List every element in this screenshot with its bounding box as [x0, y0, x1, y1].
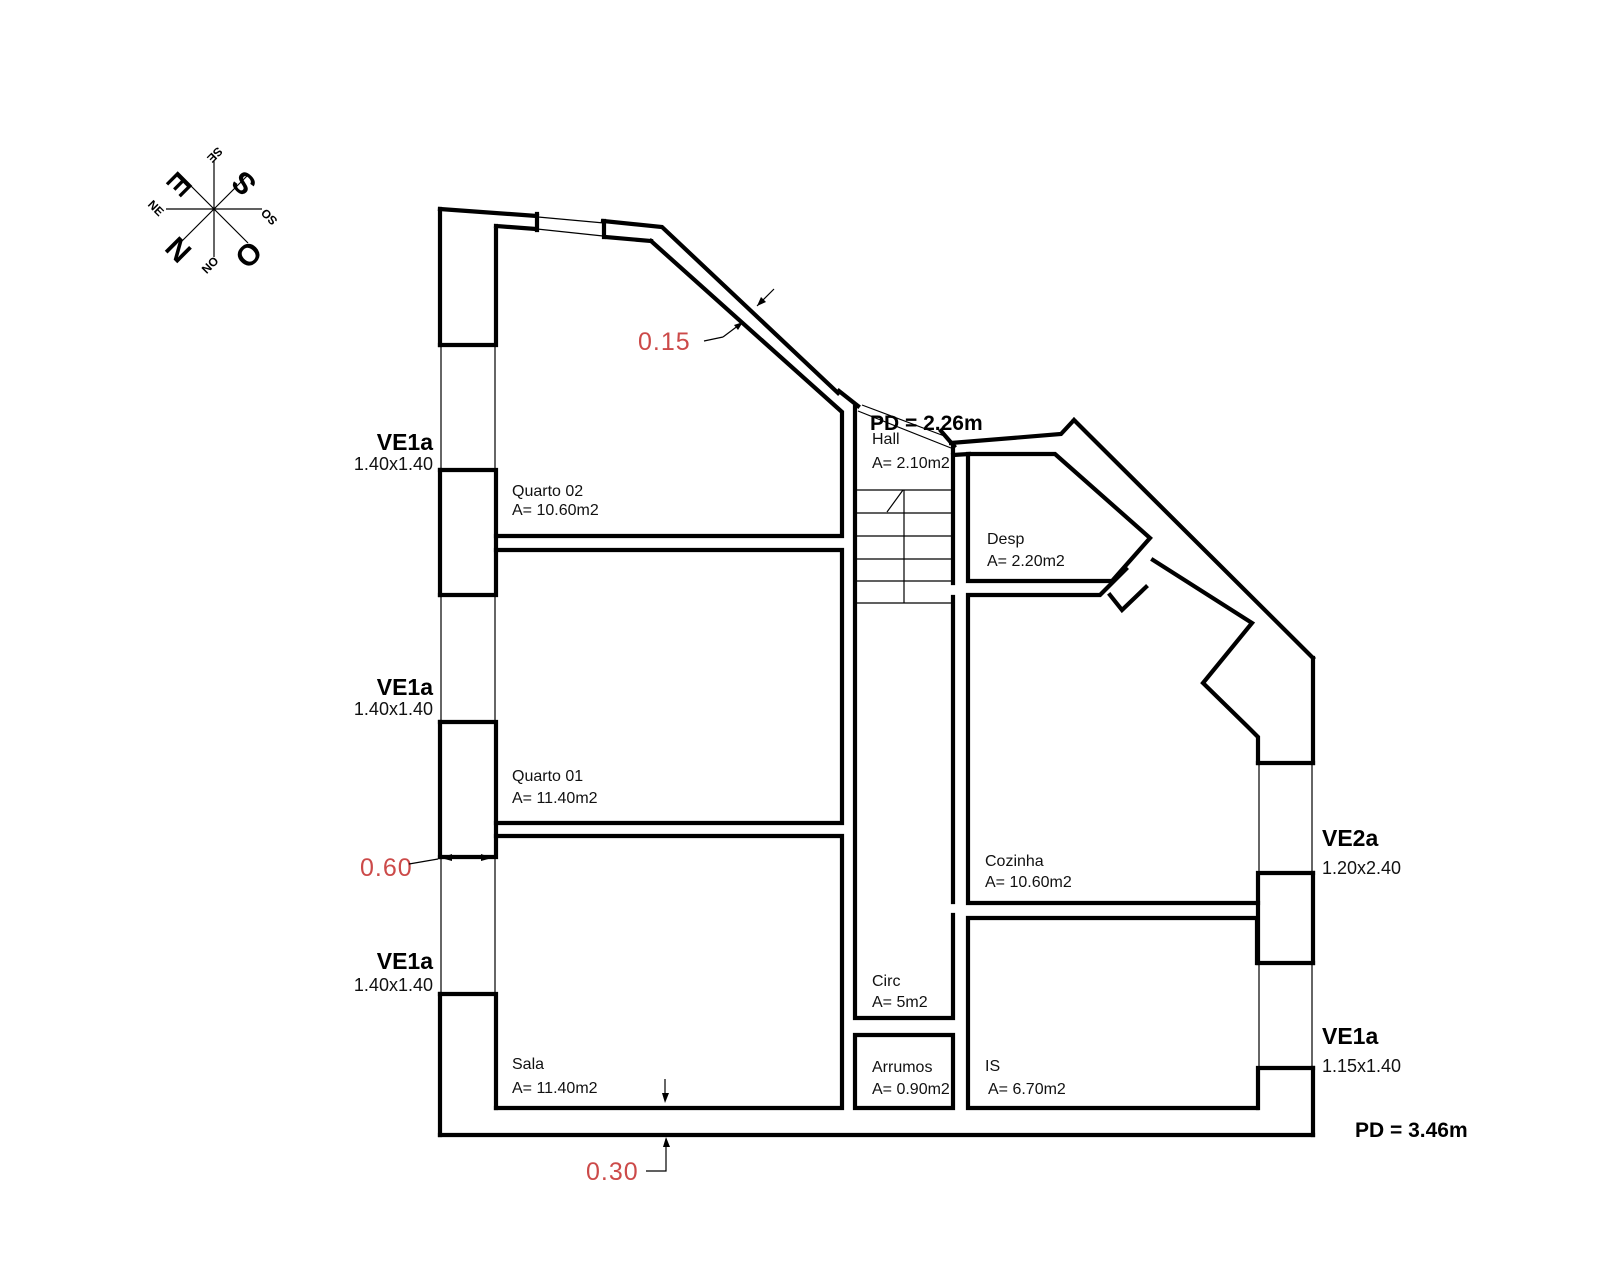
- window-size-ve1a-3: 1.40x1.40: [354, 975, 433, 995]
- window-tag-ve2a: VE2a: [1322, 825, 1378, 851]
- window-size-ve1a-2: 1.40x1.40: [354, 699, 433, 719]
- window-left-3: [441, 857, 495, 994]
- staircase: [856, 490, 952, 603]
- room-area-sala: A= 11.40m2: [512, 1080, 598, 1097]
- wall-top: [440, 209, 604, 237]
- compass-rose: SE S SO O NO N NE E: [145, 144, 280, 276]
- dimension-0-15-text: 0.15: [638, 328, 691, 356]
- wall-left-inner: [440, 226, 651, 1108]
- window-glazing-lines: [441, 217, 1312, 1068]
- room-area-quarto02: A= 10.60m2: [512, 502, 599, 519]
- window-tag-ve1a-3: VE1a: [377, 948, 433, 974]
- compass-label-s: S: [226, 164, 263, 201]
- compass-label-o: O: [229, 235, 269, 275]
- room-area-is: A= 6.70m2: [988, 1081, 1066, 1098]
- room-sala-outline: [496, 836, 842, 1108]
- room-area-desp: A= 2.20m2: [987, 553, 1065, 570]
- window-tag-ve1a-2: VE1a: [377, 674, 433, 700]
- window-tag-ve1a-4: VE1a: [1322, 1023, 1378, 1049]
- room-label-circ: Circ: [872, 973, 900, 990]
- room-is-outline: [968, 918, 1257, 1108]
- room-labels: Quarto 02 A= 10.60m2 Quarto 01 A= 11.40m…: [512, 431, 1072, 1098]
- dimension-0-30-arrowheads: [662, 1093, 670, 1147]
- room-label-desp: Desp: [987, 531, 1024, 548]
- room-label-quarto01: Quarto 01: [512, 768, 583, 785]
- compass-label-ne: NE: [145, 197, 167, 219]
- dimension-0-30: 0.30: [586, 1079, 670, 1186]
- pd-label-main: PD = 3.46m: [1355, 1119, 1468, 1142]
- corridor-outline: [855, 407, 969, 1018]
- room-area-arrumos: A= 0.90m2: [872, 1081, 950, 1098]
- room-label-cozinha: Cozinha: [985, 853, 1044, 870]
- dimension-0-60-leader: [409, 859, 438, 864]
- room-label-sala: Sala: [512, 1056, 544, 1073]
- room-label-is: IS: [985, 1058, 1000, 1075]
- window-size-ve1a-1: 1.40x1.40: [354, 454, 433, 474]
- window-right-ve2a: [1259, 763, 1312, 873]
- dimension-0-60-text: 0.60: [360, 854, 413, 882]
- stair-break-line: [887, 490, 903, 512]
- floor-plan-drawing: SE S SO O NO N NE E: [0, 0, 1600, 1280]
- window-size-ve1a-4: 1.15x1.40: [1322, 1056, 1401, 1076]
- window-left-2: [441, 595, 495, 722]
- compass-label-e: E: [160, 165, 197, 202]
- wall-right-inner: [1258, 763, 1313, 1108]
- room-label-arrumos: Arrumos: [872, 1059, 932, 1076]
- dimension-0-30-leader: [646, 1079, 666, 1171]
- pd-label-hall: PD = 2.26m: [870, 412, 983, 435]
- room-label-quarto02: Quarto 02: [512, 483, 583, 500]
- compass-label-no: NO: [199, 254, 222, 277]
- room-area-cozinha: A= 10.60m2: [985, 874, 1072, 891]
- compass-label-se: SE: [204, 144, 225, 165]
- dimension-0-30-text: 0.30: [586, 1158, 639, 1186]
- window-left-1: [441, 345, 495, 470]
- floor-plan-canvas: SE S SO O NO N NE E: [0, 0, 1600, 1280]
- room-cozinha-outline: [968, 560, 1258, 903]
- window-top-slanted: [537, 217, 604, 236]
- window-tag-ve1a-1: VE1a: [377, 429, 433, 455]
- window-right-ve1a: [1259, 963, 1312, 1068]
- compass-label-n: N: [158, 231, 197, 270]
- room-area-circ: A= 5m2: [872, 994, 928, 1011]
- window-size-ve2a: 1.20x2.40: [1322, 858, 1401, 878]
- room-area-quarto01: A= 11.40m2: [512, 790, 598, 807]
- room-area-hall: A= 2.10m2: [872, 455, 950, 472]
- dimension-0-15: 0.15: [638, 289, 774, 356]
